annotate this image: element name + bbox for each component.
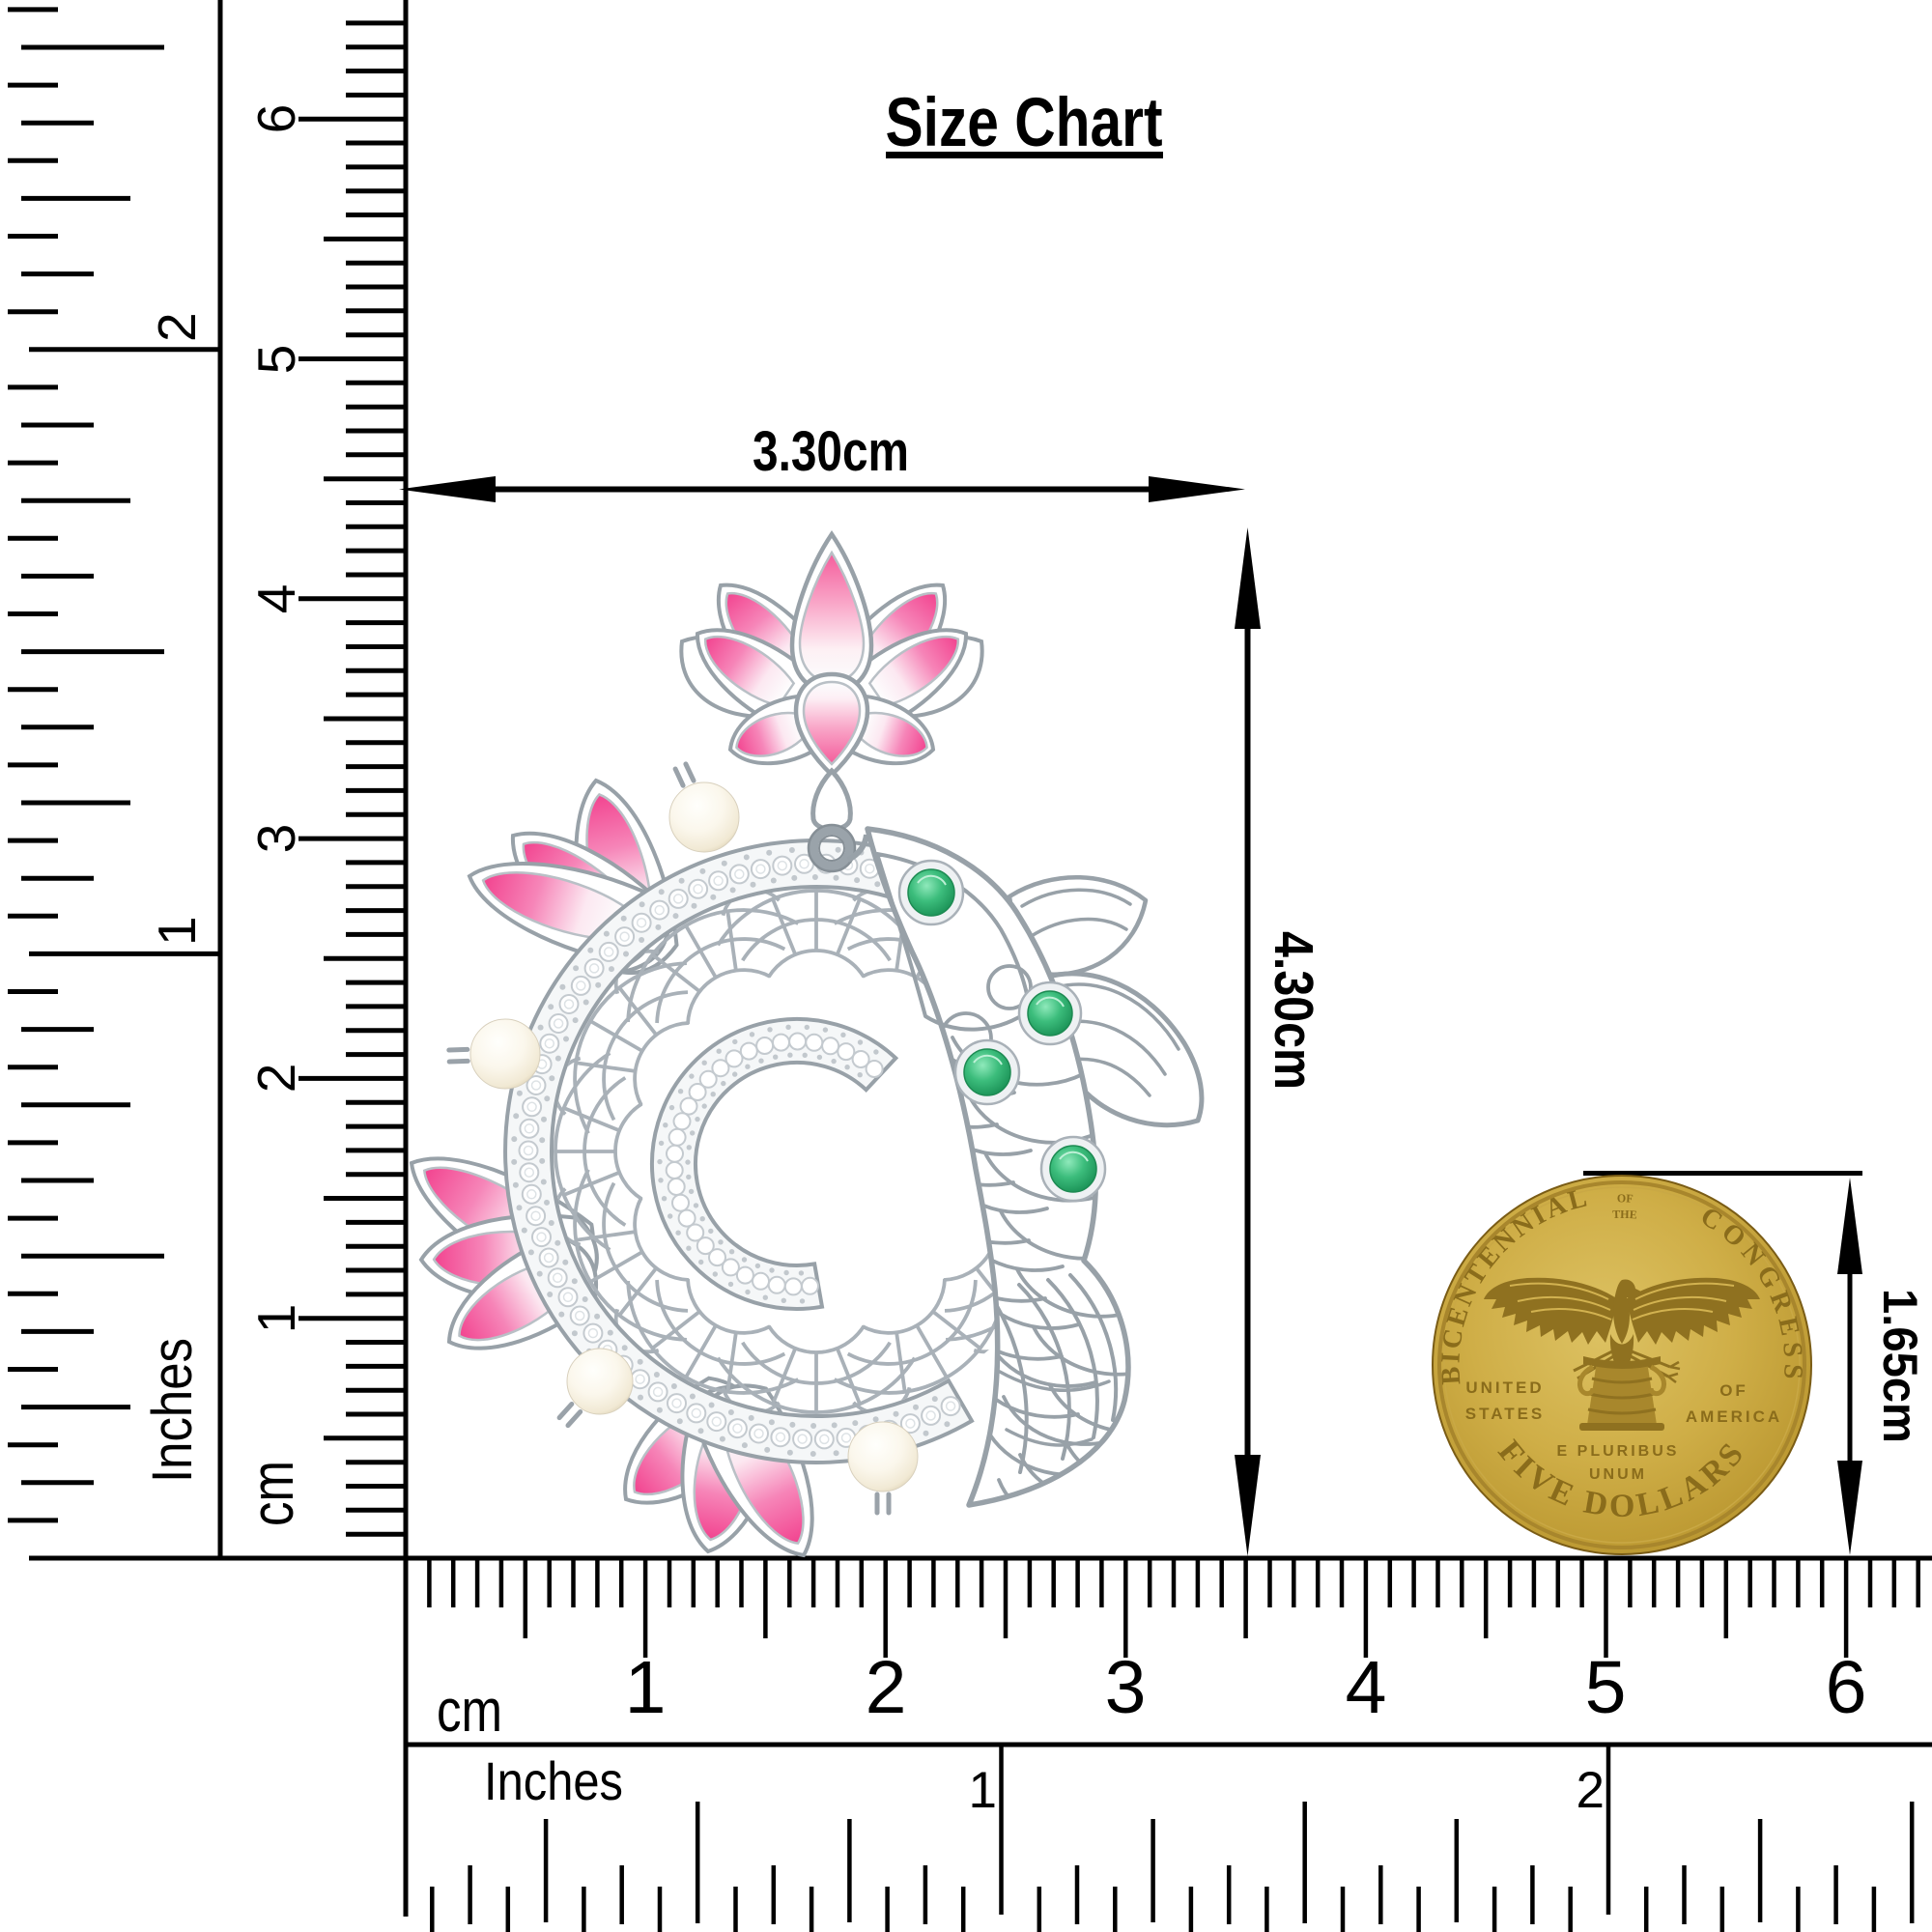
svg-text:3.30cm: 3.30cm (753, 420, 909, 483)
svg-text:1: 1 (246, 1304, 306, 1334)
svg-text:4.30cm: 4.30cm (1263, 931, 1324, 1090)
svg-text:6: 6 (246, 104, 306, 134)
svg-text:1: 1 (625, 1646, 667, 1729)
svg-text:1: 1 (147, 916, 207, 946)
svg-text:cm: cm (240, 1461, 306, 1526)
svg-text:Inches: Inches (484, 1750, 623, 1811)
svg-text:1: 1 (969, 1762, 997, 1819)
svg-text:4: 4 (1346, 1646, 1387, 1729)
svg-text:Inches: Inches (141, 1338, 204, 1483)
svg-text:E PLURIBUS: E PLURIBUS (1557, 1443, 1680, 1460)
svg-text:AMERICA: AMERICA (1686, 1407, 1782, 1426)
svg-text:6: 6 (1826, 1646, 1867, 1729)
svg-text:UNUM: UNUM (1589, 1466, 1647, 1483)
svg-text:3: 3 (1105, 1646, 1147, 1729)
svg-text:UNITED: UNITED (1465, 1378, 1544, 1397)
svg-text:OF: OF (1617, 1191, 1634, 1205)
svg-text:4: 4 (246, 584, 306, 614)
svg-text:1.65cm: 1.65cm (1873, 1289, 1927, 1443)
svg-text:cm: cm (437, 1678, 502, 1745)
svg-text:2: 2 (866, 1646, 907, 1729)
svg-text:2: 2 (1577, 1762, 1605, 1819)
svg-text:2: 2 (246, 1064, 306, 1094)
svg-text:3: 3 (246, 824, 306, 854)
svg-text:THE: THE (1612, 1207, 1637, 1222)
svg-text:5: 5 (1585, 1646, 1627, 1729)
svg-text:5: 5 (246, 345, 306, 375)
svg-text:Size Chart: Size Chart (886, 85, 1163, 161)
svg-text:OF: OF (1719, 1381, 1748, 1400)
svg-text:2: 2 (147, 312, 207, 342)
svg-text:STATES: STATES (1465, 1405, 1546, 1423)
